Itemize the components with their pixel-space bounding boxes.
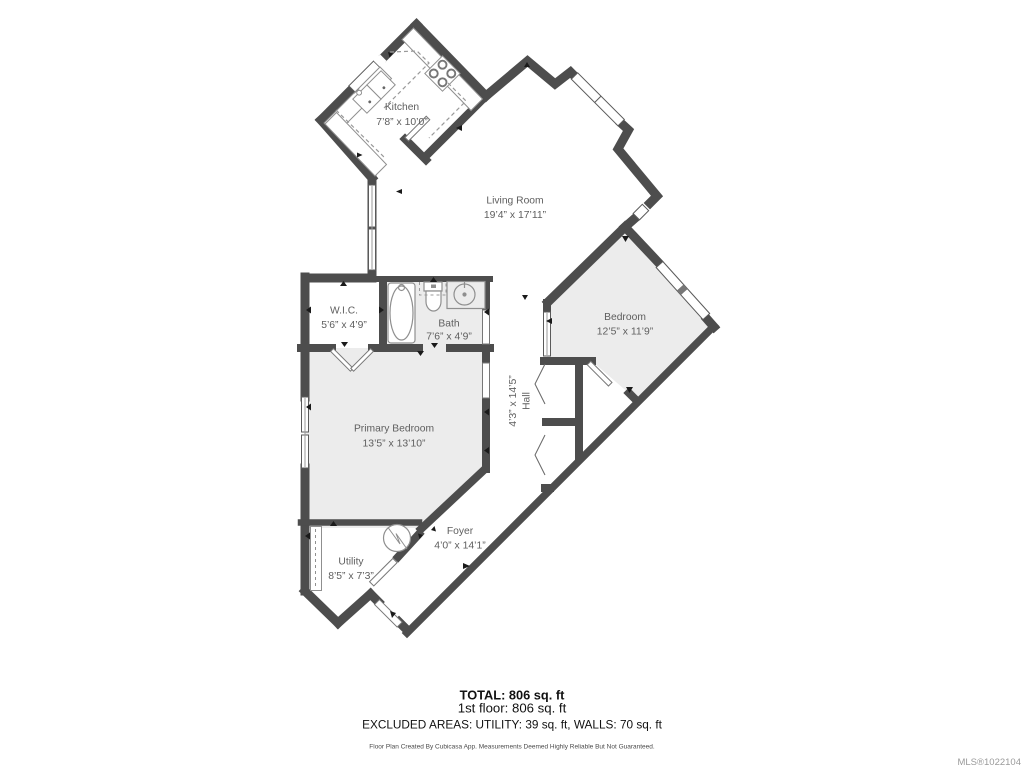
svg-text:Utility: Utility [338, 557, 364, 568]
svg-text:7’8” x 10’0”: 7’8” x 10’0” [376, 117, 428, 128]
svg-text:8’5” x 7’3”: 8’5” x 7’3” [328, 571, 374, 582]
svg-text:1st floor: 806 sq. ft: 1st floor: 806 sq. ft [458, 701, 567, 716]
svg-text:Bath: Bath [438, 319, 459, 330]
svg-text:12’5” x 11’9”: 12’5” x 11’9” [597, 327, 654, 338]
svg-text:W.I.C.: W.I.C. [330, 306, 358, 317]
svg-text:19’4” x 17’11”: 19’4” x 17’11” [484, 210, 547, 221]
svg-text:Hall: Hall [522, 392, 533, 410]
svg-text:4’0” x 14’1”: 4’0” x 14’1” [434, 541, 486, 552]
svg-text:13’5” x 13’10”: 13’5” x 13’10” [363, 439, 426, 450]
svg-text:Living Room: Living Room [486, 196, 543, 207]
svg-text:Floor Plan Created By Cubicasa: Floor Plan Created By Cubicasa App. Meas… [369, 744, 655, 751]
svg-text:Primary Bedroom: Primary Bedroom [354, 424, 434, 435]
svg-text:7’6” x 4’9”: 7’6” x 4’9” [426, 332, 472, 343]
svg-text:Bedroom: Bedroom [604, 312, 646, 323]
svg-text:4’3” x 14’5”: 4’3” x 14’5” [508, 375, 519, 427]
svg-text:5’6” x 4’9”: 5’6” x 4’9” [321, 320, 367, 331]
svg-text:Foyer: Foyer [447, 526, 474, 537]
svg-text:EXCLUDED AREAS: UTILITY: 39 sq: EXCLUDED AREAS: UTILITY: 39 sq. ft, WALL… [362, 718, 663, 732]
svg-text:Kitchen: Kitchen [385, 102, 420, 113]
svg-text:MLS®1022104: MLS®1022104 [957, 757, 1021, 768]
